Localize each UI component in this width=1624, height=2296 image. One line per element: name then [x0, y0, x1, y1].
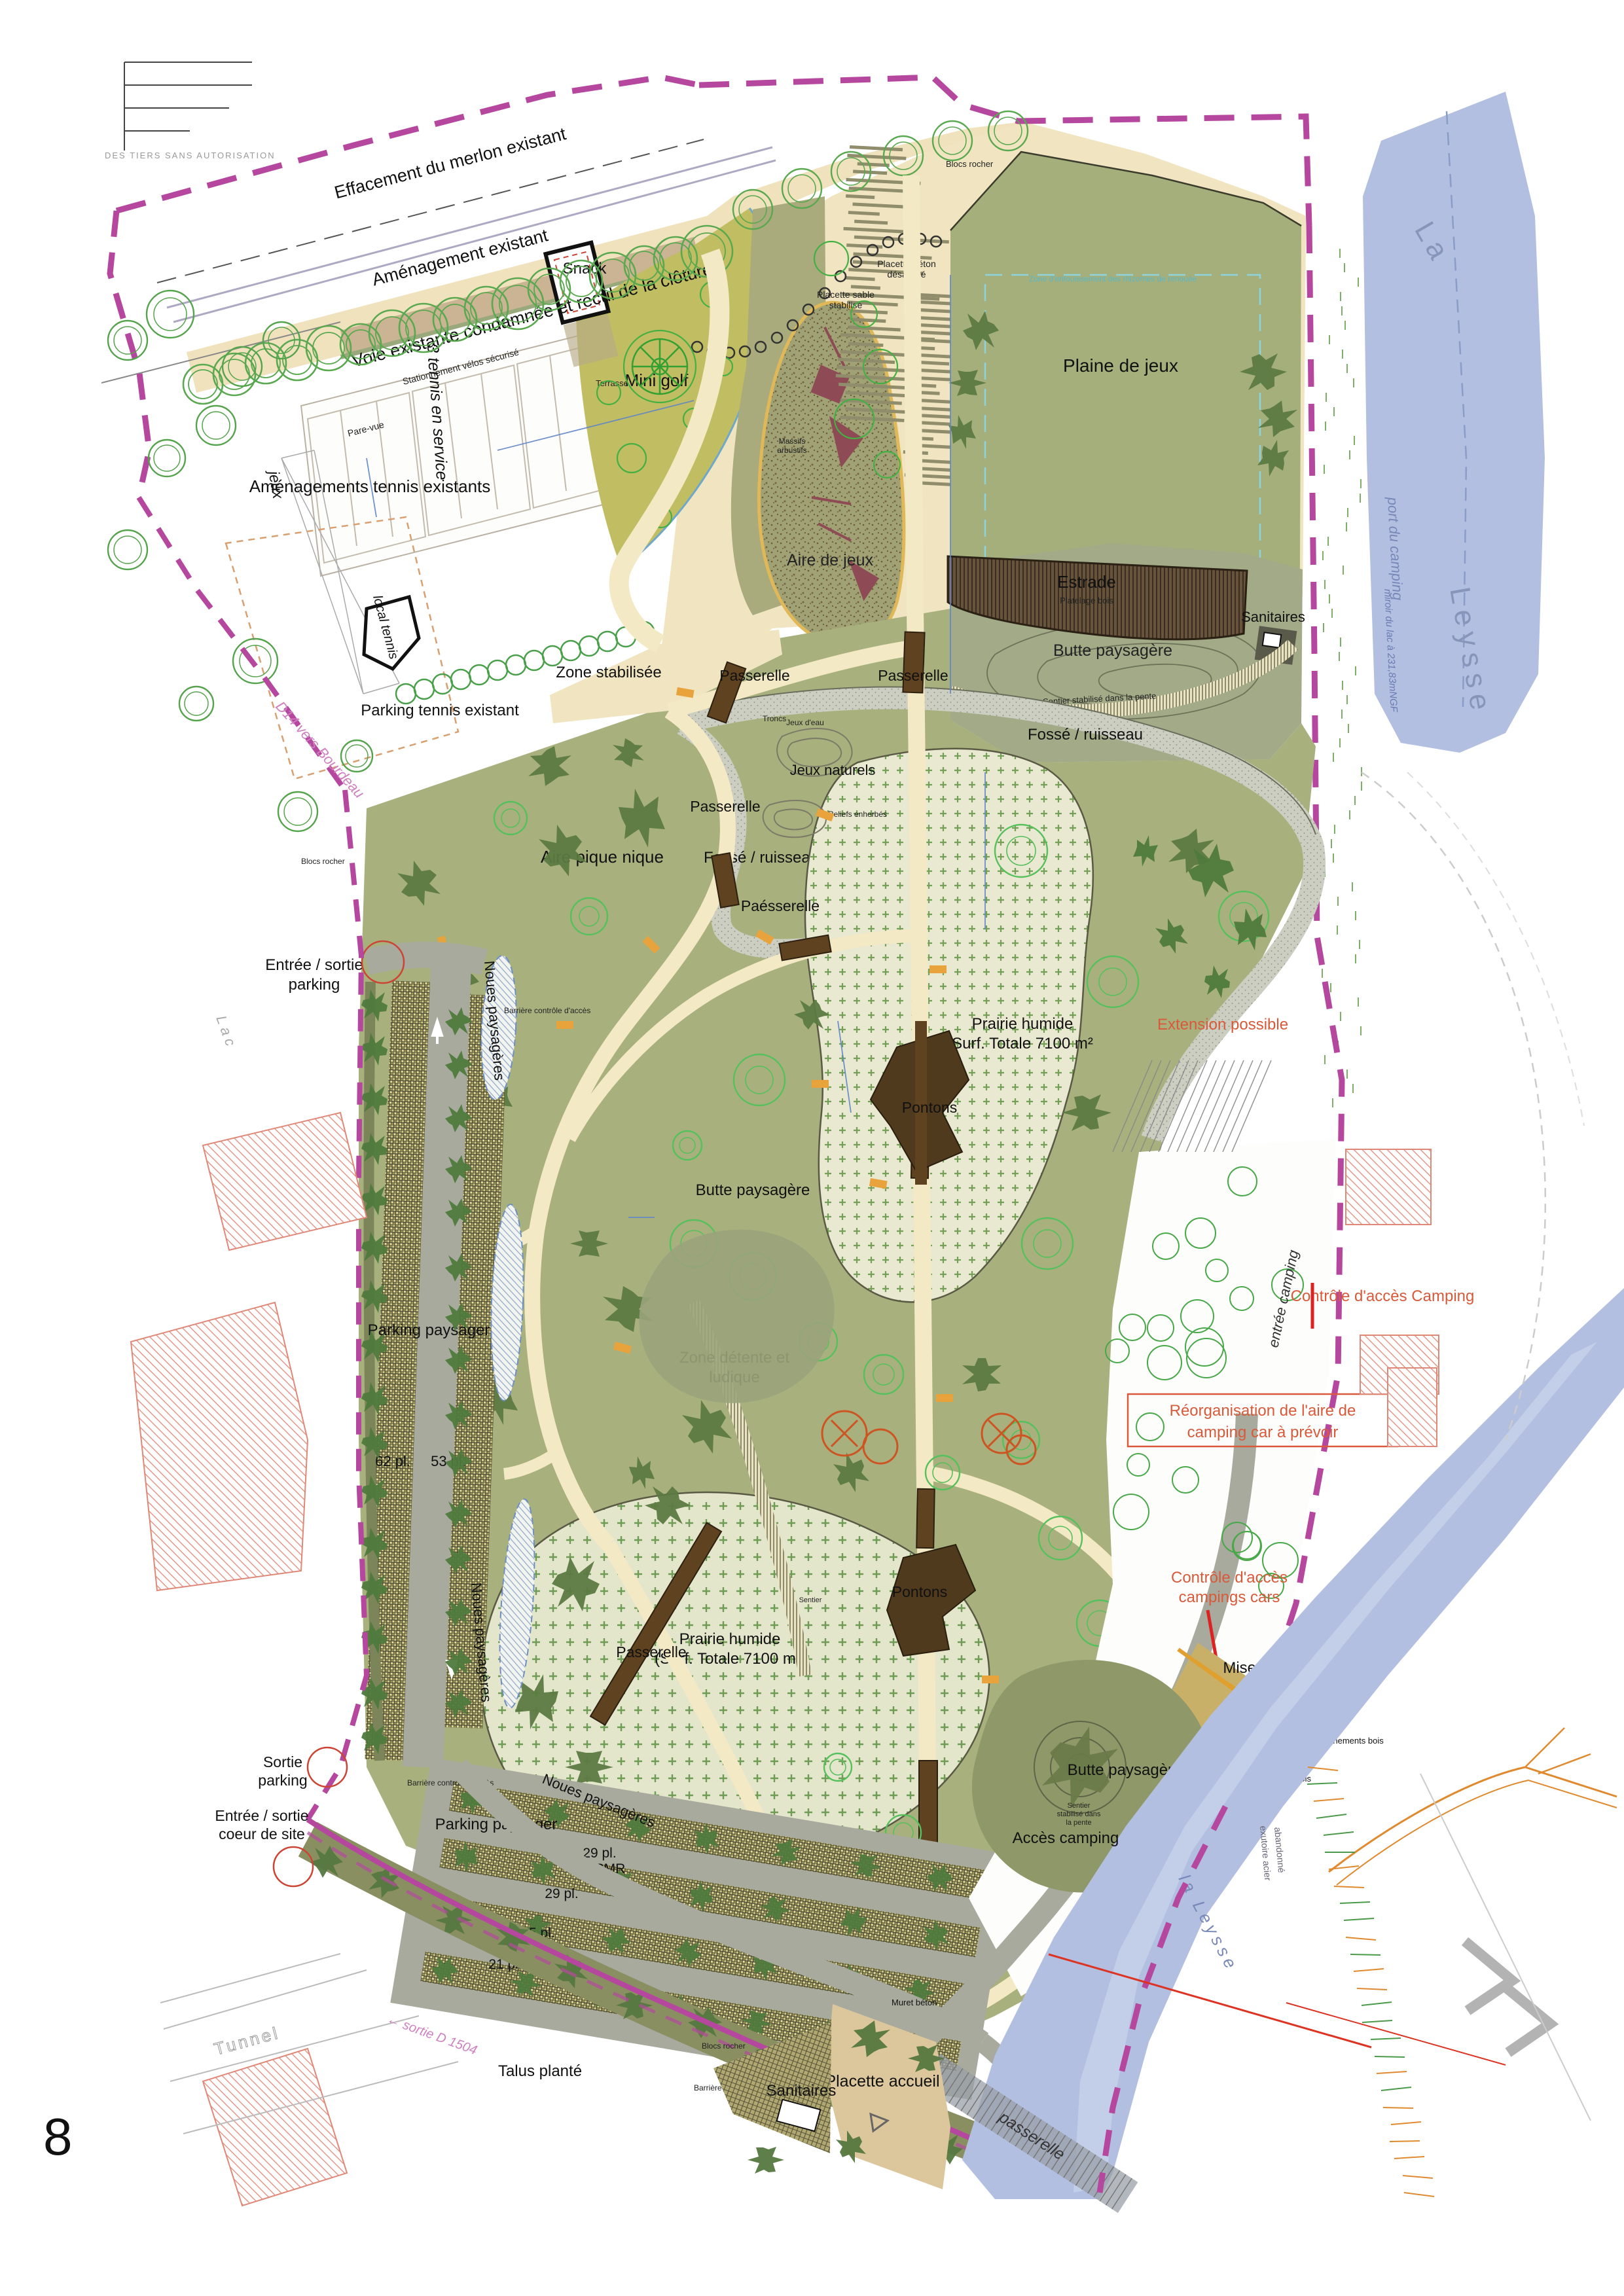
svg-text:Zone d'enfouissement des rhizo: Zone d'enfouissement des rhizomes de ren… — [1029, 274, 1197, 283]
svg-text:Blocs rocher: Blocs rocher — [301, 857, 345, 866]
svg-text:DES TIERS SANS AUTORISATION: DES TIERS SANS AUTORISATION — [105, 151, 276, 160]
svg-text:Sanitaires: Sanitaires — [767, 2082, 837, 2100]
svg-text:Placette accueil: Placette accueil — [825, 2072, 939, 2090]
svg-text:Butte paysagère: Butte paysagère — [1053, 641, 1172, 660]
svg-text:Terrasse: Terrasse — [596, 378, 628, 388]
svg-text:Entrée / sortie: Entrée / sortie — [265, 956, 363, 974]
svg-text:Zone stabilisée: Zone stabilisée — [556, 664, 661, 681]
svg-text:Muret béton: Muret béton — [892, 1998, 937, 2007]
svg-text:(Surf. Totale 7100 m²: (Surf. Totale 7100 m² — [947, 1035, 1093, 1052]
svg-text:Massifs: Massifs — [779, 437, 806, 446]
svg-text:Jeux d'eau: Jeux d'eau — [786, 718, 824, 727]
svg-text:stabilisé dans: stabilisé dans — [1057, 1810, 1101, 1818]
svg-text:la pente: la pente — [1066, 1819, 1091, 1827]
svg-text:Sortie: Sortie — [263, 1753, 302, 1770]
svg-text:Passerelle: Passerelle — [719, 667, 789, 684]
svg-text:Passerelle: Passerelle — [690, 798, 760, 815]
svg-text:29 pl.: 29 pl. — [545, 1886, 578, 1901]
svg-text:Estrade: Estrade — [1057, 572, 1116, 592]
svg-text:Jeux naturels: Jeux naturels — [790, 762, 876, 778]
svg-text:Pontons: Pontons — [902, 1099, 957, 1116]
svg-text:stabilisé: stabilisé — [829, 300, 863, 310]
svg-text:Troncs: Troncs — [763, 714, 786, 723]
svg-text:Passerelle: Passerelle — [878, 667, 948, 684]
svg-text:Placette sable: Placette sable — [817, 289, 875, 300]
svg-text:camping car à prévoir: camping car à prévoir — [1187, 1424, 1339, 1441]
svg-text:Parking tennis existant: Parking tennis existant — [361, 702, 519, 719]
svg-text:Platelage bois: Platelage bois — [1060, 596, 1113, 605]
svg-text:Barrière contrôle d'accès: Barrière contrôle d'accès — [504, 1006, 590, 1015]
svg-text:parking: parking — [289, 976, 340, 994]
svg-text:Passerelle: Passerelle — [616, 1643, 686, 1660]
svg-text:campings cars: campings cars — [1179, 1588, 1280, 1606]
svg-text:coeur de site: coeur de site — [219, 1825, 305, 1842]
svg-text:Talus planté: Talus planté — [498, 2062, 582, 2080]
svg-text:Reliefs enherbés: Reliefs enherbés — [828, 810, 887, 819]
svg-text:Entrée / sortie: Entrée / sortie — [215, 1807, 308, 1824]
svg-text:Paésserelle: Paésserelle — [741, 897, 820, 914]
svg-text:Plaine de jeux: Plaine de jeux — [1063, 355, 1178, 376]
svg-text:Contrôle d'accès Camping: Contrôle d'accès Camping — [1291, 1287, 1475, 1305]
svg-text:Fossé / ruisseau: Fossé / ruisseau — [1028, 726, 1143, 744]
svg-text:Aire de jeux: Aire de jeux — [787, 551, 874, 569]
svg-text:Accès camping: Accès camping — [1013, 1829, 1119, 1847]
svg-text:arbustifs: arbustifs — [777, 446, 806, 455]
svg-text:8: 8 — [43, 2108, 73, 2166]
svg-text:Prairie humide: Prairie humide — [679, 1630, 781, 1648]
svg-text:parking: parking — [258, 1772, 307, 1789]
svg-text:Sentier: Sentier — [1068, 1802, 1091, 1810]
svg-text:Parking paysager: Parking paysager — [368, 1321, 490, 1339]
svg-text:Butte paysagère: Butte paysagère — [696, 1181, 810, 1199]
svg-text:Prairie humide: Prairie humide — [972, 1015, 1074, 1033]
svg-text:Extension possible: Extension possible — [1157, 1016, 1288, 1033]
svg-text:Pontons: Pontons — [892, 1583, 947, 1600]
svg-text:62 pl.: 62 pl. — [375, 1453, 410, 1469]
svg-text:Réorganisation de l'aire de: Réorganisation de l'aire de — [1170, 1402, 1356, 1420]
svg-text:Sentier: Sentier — [799, 1596, 822, 1604]
svg-text:Sanitaires: Sanitaires — [1241, 609, 1305, 625]
svg-text:Blocs rocher: Blocs rocher — [702, 2041, 746, 2051]
svg-text:Contrôle d'accès: Contrôle d'accès — [1171, 1569, 1288, 1587]
